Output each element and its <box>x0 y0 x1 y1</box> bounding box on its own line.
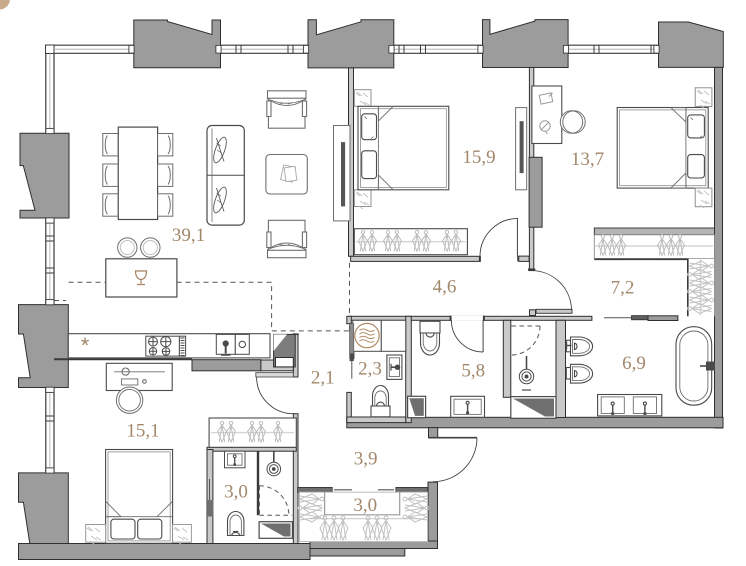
svg-text:6,9: 6,9 <box>622 353 646 374</box>
svg-text:3,0: 3,0 <box>224 482 248 503</box>
svg-text:2,3: 2,3 <box>358 359 382 380</box>
svg-text:2,1: 2,1 <box>311 368 335 389</box>
svg-text:3,0: 3,0 <box>353 495 377 516</box>
svg-text:*: * <box>81 333 90 358</box>
svg-text:13,7: 13,7 <box>571 149 604 170</box>
svg-text:5,8: 5,8 <box>461 361 485 382</box>
svg-text:15,1: 15,1 <box>126 421 159 442</box>
svg-text:15,9: 15,9 <box>462 147 495 168</box>
svg-text:7,2: 7,2 <box>611 278 635 299</box>
svg-text:3,9: 3,9 <box>354 449 378 470</box>
svg-text:39,1: 39,1 <box>172 225 205 246</box>
svg-text:4,6: 4,6 <box>433 277 457 298</box>
